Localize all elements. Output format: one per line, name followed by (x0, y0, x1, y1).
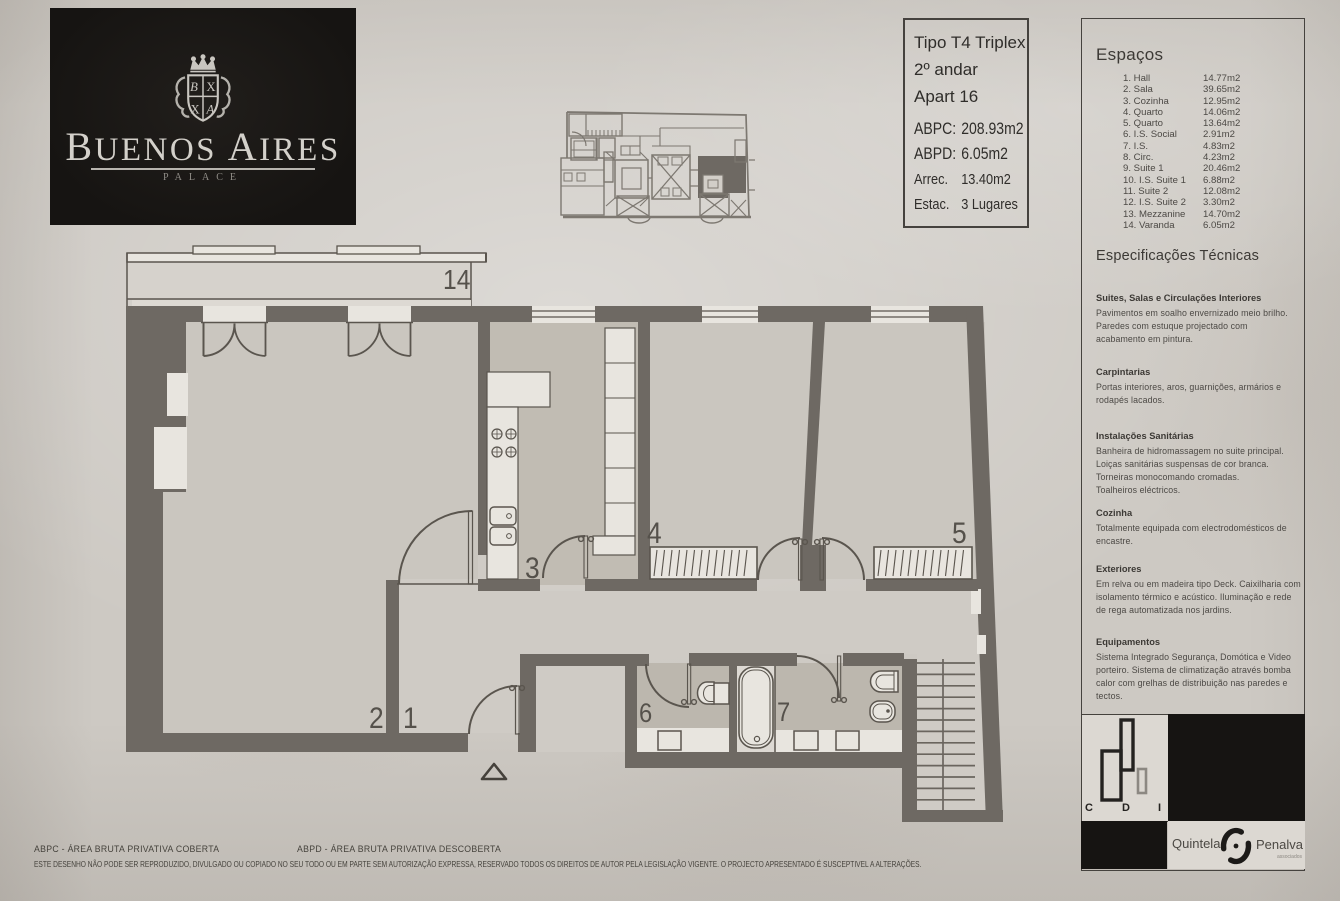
svg-text:Penalva: Penalva (1256, 837, 1304, 852)
svg-text:X: X (206, 80, 215, 94)
svg-text:2: 2 (369, 700, 384, 734)
svg-text:C: C (1085, 802, 1093, 814)
svg-text:14: 14 (443, 264, 470, 296)
svg-text:X: X (190, 102, 199, 116)
svg-text:3: 3 (525, 550, 540, 584)
svg-text:B: B (190, 80, 198, 94)
svg-text:4: 4 (647, 515, 662, 549)
svg-text:A: A (206, 102, 215, 116)
svg-text:D: D (1122, 802, 1130, 814)
svg-text:associados: associados (1277, 854, 1303, 860)
svg-text:Quintela: Quintela (1172, 836, 1221, 851)
svg-text:7: 7 (777, 698, 790, 728)
svg-text:6: 6 (639, 699, 652, 729)
svg-text:1: 1 (403, 700, 418, 734)
svg-text:5: 5 (952, 515, 967, 549)
svg-text:I: I (1158, 802, 1161, 814)
